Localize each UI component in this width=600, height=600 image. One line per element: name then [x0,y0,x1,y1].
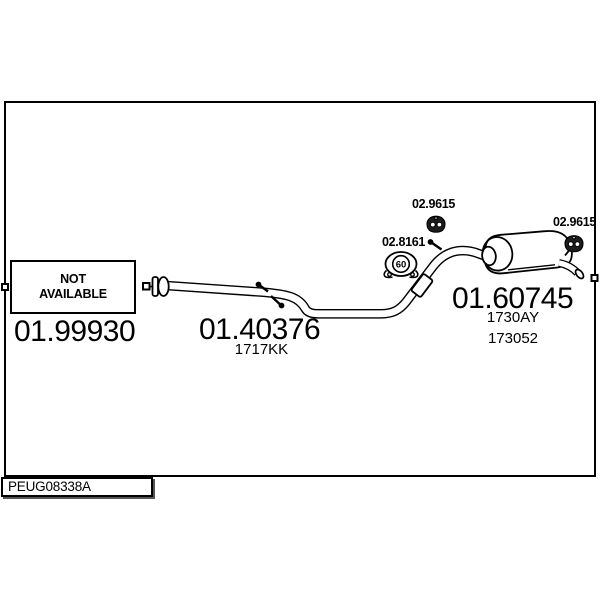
part-number-clamp: 02.8161 [382,236,425,249]
oe-ref-rear-silencer-1: 1730AY [452,310,574,325]
not-available-box: NOT AVAILABLE [10,260,136,314]
exhaust-diagram-page: 60 NOT AVAILABLE 01.99930 01.40376 1717K… [0,0,600,600]
part-number-hanger-rear: 02.9615 [553,216,596,229]
catalog-code-box: PEUG08338A [1,477,153,497]
oe-ref-rear-silencer-2: 173052 [452,331,574,346]
not-available-line2: AVAILABLE [39,288,107,301]
not-available-line1: NOT [60,273,86,286]
part-number-hanger-mid: 02.9615 [412,198,455,211]
oe-ref-center-pipe: 1717KK [199,342,324,357]
catalog-code: PEUG08338A [8,479,91,494]
part-number-front-pipe: 01.99930 [14,317,135,347]
